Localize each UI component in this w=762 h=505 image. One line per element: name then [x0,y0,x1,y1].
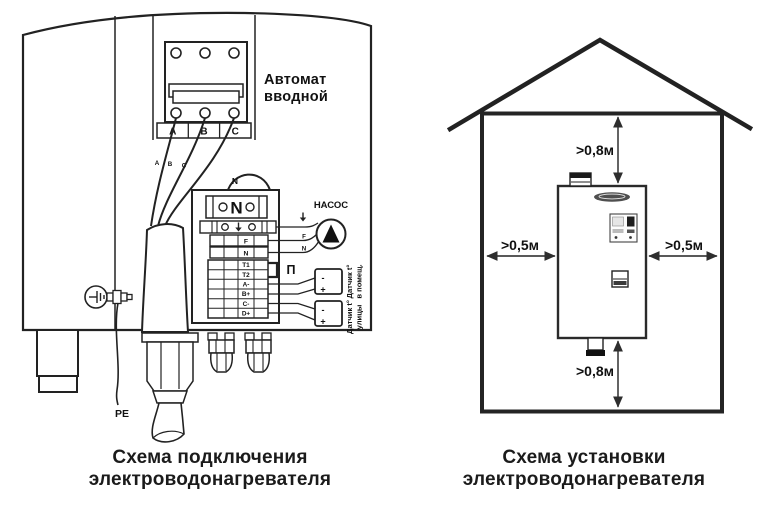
pump-title: НАСОС [314,200,348,211]
installation-diagram-caption: Схема установки электроводонагревателя [408,447,760,491]
outdoor-sensor-plus: + [320,317,325,327]
phase-wire-c-label: С [182,163,187,170]
indoor-sensor-box: - + [315,269,342,295]
phase-wire-a-label: А [155,160,160,167]
power-cable [152,403,184,442]
outdoor-sensor-label-line2: улицы [355,305,364,330]
pump-wire-n-label: N [302,246,307,253]
row-n-label: N [244,250,249,257]
page: A B C Автомат вводной А В С N N [0,0,762,505]
right-clearance-label: >0,5м [665,237,703,253]
row-d-label: D+ [242,311,251,318]
sensor-cable-gland-2 [245,333,271,372]
phase-c-label: C [232,127,239,138]
ground-terminal-row [200,221,276,233]
breaker-caption-line1: Автомат [264,72,327,88]
row-t2-label: T2 [242,272,250,279]
pe-label: PE [115,408,129,420]
indoor-sensor-minus: - [322,273,325,283]
indoor-sensor-plus: + [320,285,325,295]
pump [317,220,346,249]
indoor-sensor-label-line1: Датчик t° [345,265,354,299]
neutral-bus-label: N [230,199,242,218]
neutral-wire-label: N [232,176,238,186]
control-panel [610,214,637,242]
main-cable-gland [142,333,198,442]
outdoor-sensor-label-line1: Датчик t° [345,300,354,334]
bottom-pipe [586,338,605,356]
pump-wire-f-label: F [302,234,306,241]
ground-screw-icon [85,286,107,308]
brand-logo-oval [594,192,630,202]
bottom-tank-stub [37,330,78,392]
outdoor-sensor-box: - + [315,301,342,327]
fn-terminal-rows: F N [210,235,268,258]
power-switch [612,271,628,287]
installation-diagram-svg: >0,8м >0,8м >0,5м >0,5м [400,0,762,445]
outdoor-sensor-minus: - [322,305,325,315]
phase-wire-b-label: В [168,161,173,168]
bottom-clearance-label: >0,8м [576,363,614,379]
row-a-label: A- [243,282,250,289]
neutral-bus-block: N [206,196,267,218]
cable-sheath [142,224,188,332]
row-b-label: B+ [242,291,251,298]
top-clearance-label: >0,8м [576,142,614,158]
jumper-label: П [287,263,296,277]
indoor-sensor-label-line2: в помещ. [355,264,364,298]
row-c-label: C- [243,301,250,308]
sensor-terminal-block: T1 T2 A- B+ C- D+ [208,260,268,318]
sensor-cable-gland-1 [208,333,234,372]
wiring-diagram-caption: Схема подключения электроводонагревателя [18,447,402,491]
wiring-diagram-svg: A B C Автомат вводной А В С N N [0,0,400,445]
wiring-caption-line2: электроводонагревателя [18,469,402,491]
left-clearance-label: >0,5м [501,237,539,253]
heater-unit [558,186,646,338]
input-breaker [165,42,247,122]
breaker-caption-line2: вводной [264,89,328,105]
row-f-label: F [244,238,248,245]
air-vent-valve [570,173,591,186]
installation-caption-line1: Схема установки [408,447,760,469]
row-t1-label: T1 [242,262,250,269]
installation-caption-line2: электроводонагревателя [408,469,760,491]
wiring-caption-line1: Схема подключения [18,447,402,469]
